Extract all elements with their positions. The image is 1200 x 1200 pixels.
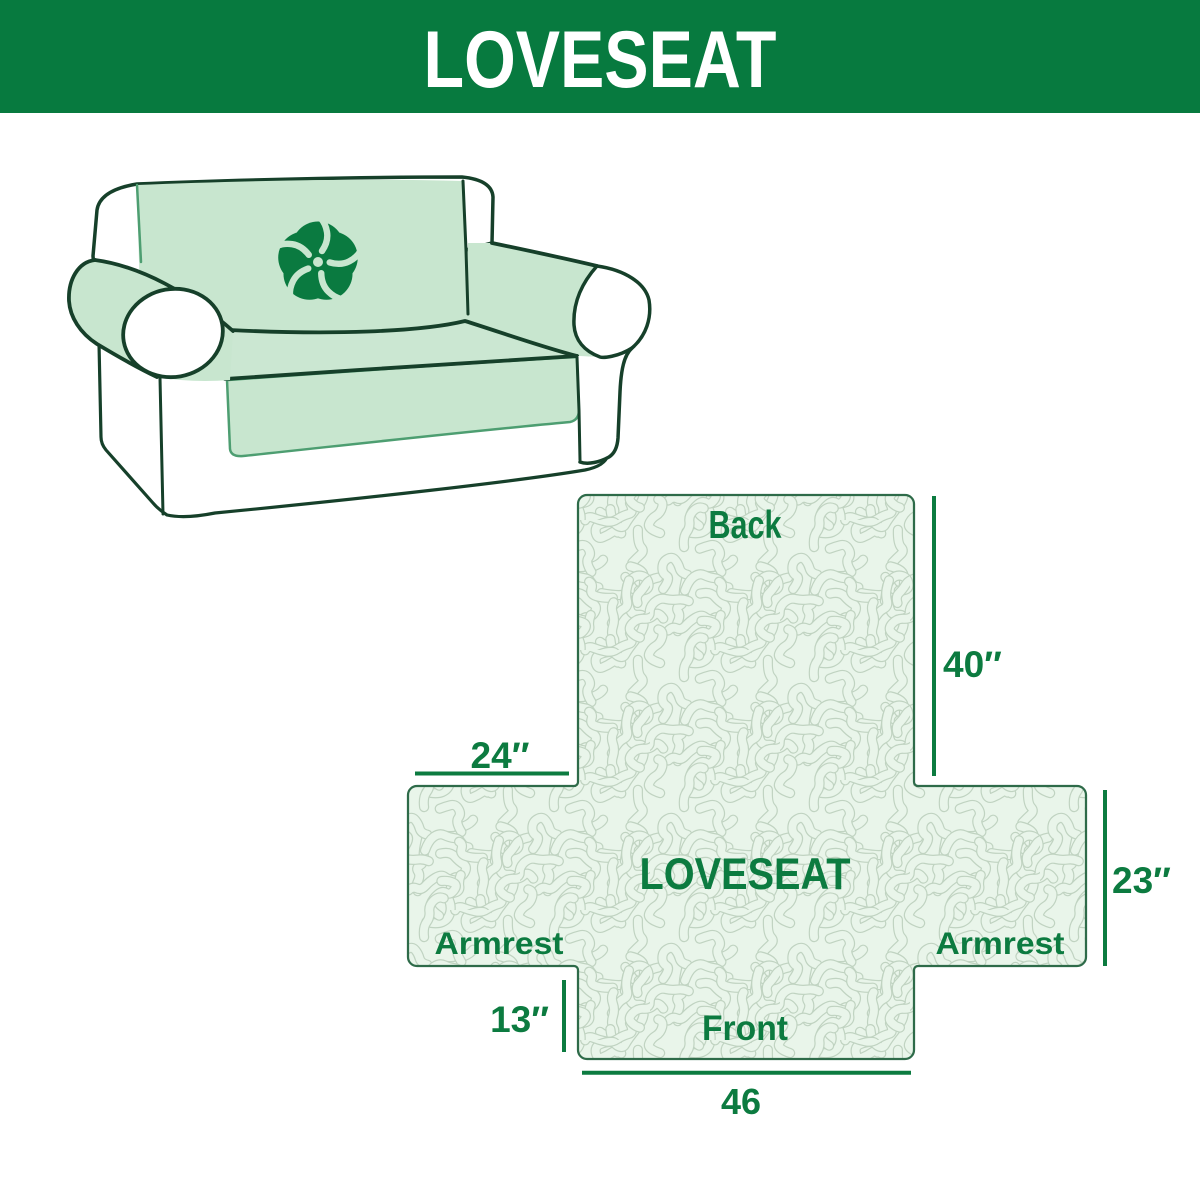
svg-text:Front: Front [702, 1009, 788, 1048]
svg-text:Back: Back [709, 504, 782, 547]
svg-text:23″: 23″ [1112, 860, 1171, 901]
svg-text:Armrest: Armrest [435, 925, 565, 961]
svg-text:LOVESEAT: LOVESEAT [424, 15, 777, 105]
svg-text:Armrest: Armrest [936, 925, 1066, 961]
svg-text:LOVESEAT: LOVESEAT [640, 850, 851, 899]
svg-text:40″: 40″ [943, 644, 1002, 685]
svg-text:46: 46 [721, 1081, 761, 1122]
svg-text:13″: 13″ [490, 999, 549, 1040]
svg-text:24″: 24″ [471, 735, 530, 776]
